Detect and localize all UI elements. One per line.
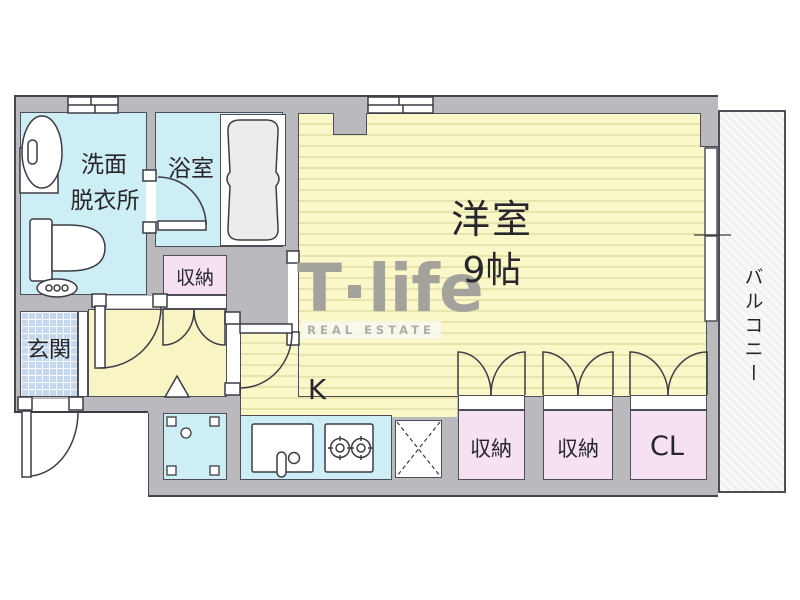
toilet-icon xyxy=(30,219,105,297)
balcony-window-icon xyxy=(694,148,731,321)
door-jamb-icon xyxy=(153,294,167,307)
label-entrance: 玄関 xyxy=(20,338,78,364)
closet-1-doors xyxy=(458,352,525,395)
door-leaf-icon xyxy=(158,221,206,230)
hall-storage-doors xyxy=(163,310,225,345)
door-leaf-icon xyxy=(22,411,31,477)
kitchen-door-opening xyxy=(227,320,240,390)
label-closet-1: 収納 xyxy=(459,437,523,461)
door-jamb-icon xyxy=(92,294,106,307)
label-bathroom: 浴室 xyxy=(159,156,223,182)
door-arc-icon xyxy=(158,177,206,225)
watermark-tagline: REAL ESTATE xyxy=(301,321,441,339)
door-leaf-icon xyxy=(95,306,105,368)
door-jamb-icon xyxy=(225,312,240,324)
refrigerator-cross-icon xyxy=(397,422,440,476)
door-arc-icon xyxy=(31,412,78,476)
closet-2-doors xyxy=(543,352,613,395)
stove-icon xyxy=(325,424,373,472)
door-leaf-icon xyxy=(240,324,292,333)
washing-machine-icon xyxy=(167,417,219,475)
wall-cap-icon xyxy=(287,332,299,345)
door-jamb-icon xyxy=(69,397,83,410)
door-arc-icon xyxy=(100,307,161,368)
label-washroom-line1: 洗面 xyxy=(72,152,136,178)
bathtub-icon xyxy=(227,120,279,240)
door-jamb-icon xyxy=(18,397,32,410)
label-washroom-line2: 脱衣所 xyxy=(62,188,148,214)
brand-dot-icon xyxy=(348,285,361,298)
door-arc-icon xyxy=(578,352,613,395)
wash-basin-icon xyxy=(20,116,62,193)
door-arc-icon xyxy=(668,352,707,395)
door-arc-icon xyxy=(630,352,668,395)
label-closet-2: 収納 xyxy=(546,437,610,461)
watermark-brand-t: T xyxy=(297,250,341,327)
label-kitchen: K xyxy=(301,374,333,406)
floor-plan: Tlife REAL ESTATE 洗面 脱衣所 浴室 収納 玄関 K 洋室 9… xyxy=(0,0,800,600)
step-triangle-icon xyxy=(165,376,189,397)
kitchen-sink-icon xyxy=(252,424,313,477)
door-arc-icon xyxy=(240,333,292,388)
window-icon-top-left xyxy=(68,97,118,113)
door-arc-icon xyxy=(194,310,225,345)
door-arc-icon xyxy=(163,310,194,345)
label-main-room: 洋室 xyxy=(444,198,540,242)
door-arc-icon xyxy=(543,352,578,395)
door-jamb-icon xyxy=(143,222,156,233)
door-arc-icon xyxy=(491,352,525,395)
window-icon-top-center xyxy=(368,97,433,113)
door-arc-icon xyxy=(458,352,491,395)
door-jamb-icon xyxy=(225,383,240,395)
label-main-room-size: 9帖 xyxy=(450,250,534,292)
label-balcony: バルコニー xyxy=(739,247,765,407)
door-jamb-icon xyxy=(143,170,156,181)
label-hall-storage: 収納 xyxy=(163,266,227,290)
closet-3-doors xyxy=(630,352,707,395)
label-closet-3: CL xyxy=(639,431,695,461)
